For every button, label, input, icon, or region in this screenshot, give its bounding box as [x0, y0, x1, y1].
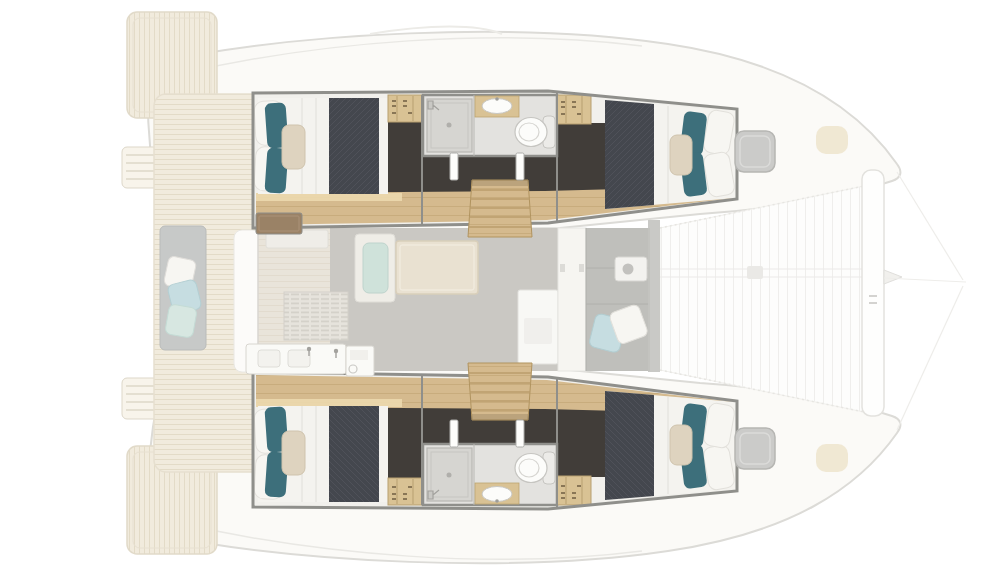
sink-bowl [288, 350, 310, 367]
sink-bowl [258, 350, 280, 367]
deck-hatch-port [735, 131, 775, 172]
catamaran-floor-plan [0, 0, 1001, 566]
salon-bench-cushion [363, 243, 388, 293]
forward-lounge [558, 220, 660, 372]
forward-bulkhead [558, 228, 586, 371]
bulkhead-latch [579, 264, 584, 272]
bow-pod-port [816, 126, 848, 154]
bulkhead-latch [560, 264, 565, 272]
floor-plan-page [0, 0, 1001, 566]
galley-appliance [346, 346, 374, 376]
anchor-plate [747, 266, 763, 279]
cockpit-bench [160, 226, 206, 350]
salon-table [396, 241, 478, 294]
cockpit-pillow-aqua [165, 304, 198, 338]
mast-step-hatch [615, 257, 647, 281]
galley-sink-unit [246, 344, 346, 374]
bow-pod-starboard [816, 444, 848, 472]
deck-hatch-starboard [735, 428, 775, 469]
galley-counter-walnut [256, 213, 302, 234]
forward-crossbeam [862, 170, 884, 416]
galley-vent-grill [284, 292, 348, 340]
nav-cabinet [518, 290, 558, 364]
salon-bench [355, 234, 395, 302]
mast-beam [648, 220, 660, 372]
